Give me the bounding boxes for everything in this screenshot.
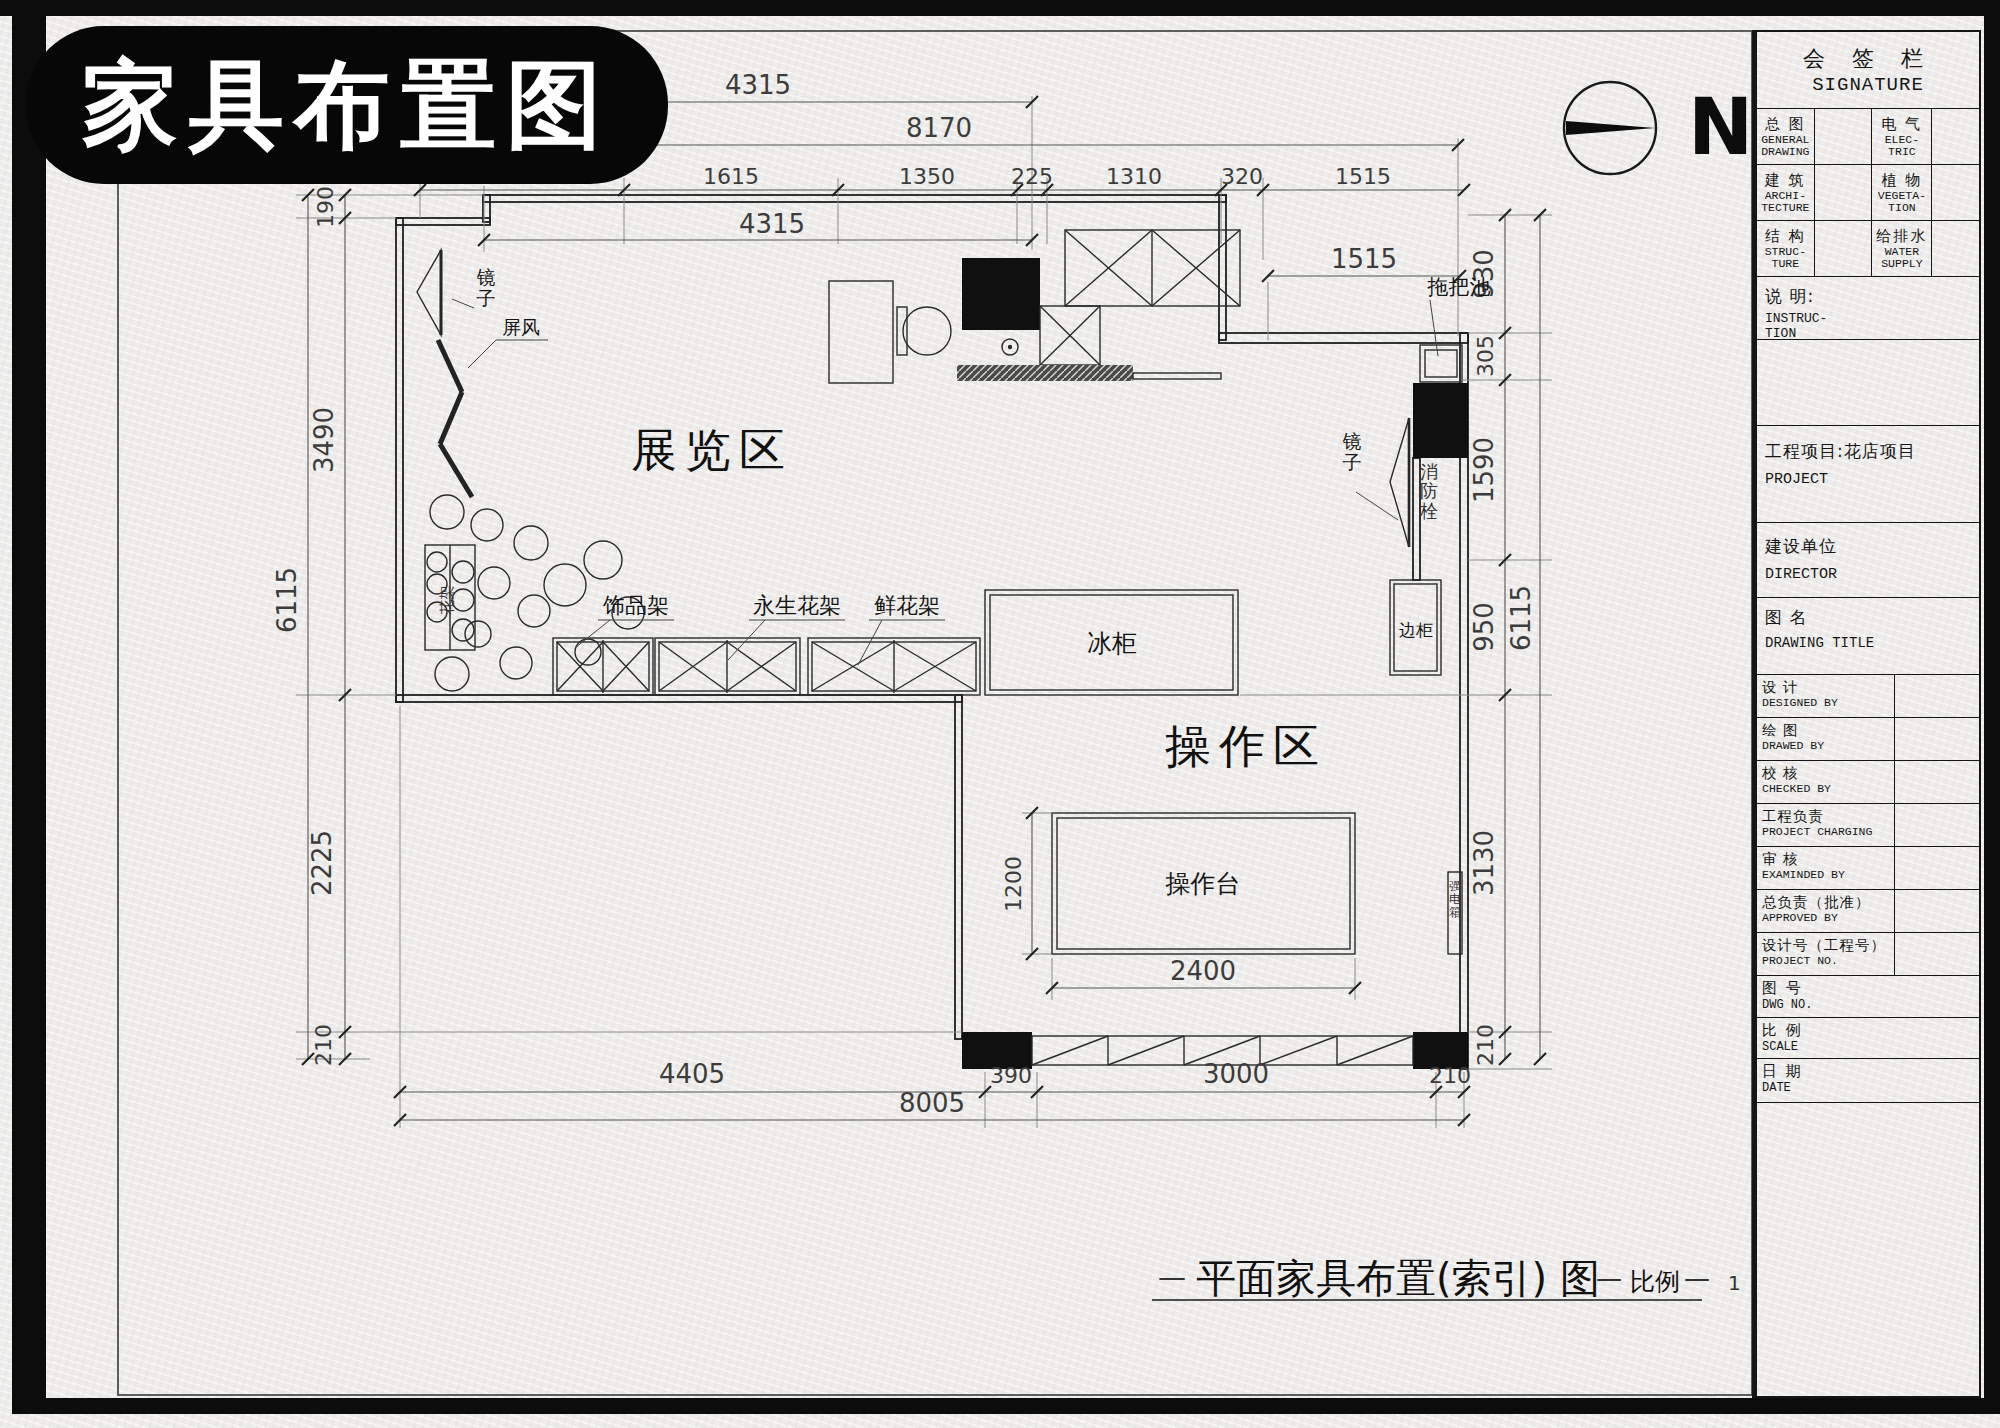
dim-chain-0: 1615 (703, 164, 759, 189)
dim-chain-5: 1515 (1335, 164, 1391, 189)
sig-cell-blank (1815, 165, 1873, 221)
dim-table-depth: 1200 (1001, 856, 1026, 912)
dim-chain-2: 225 (1011, 164, 1053, 189)
counter-edge (1133, 373, 1221, 379)
appliance-black (962, 258, 1040, 330)
chair-back (897, 307, 907, 355)
drawing-sheet: 4315 8170 1615 1350 225 1310 320 1515 43… (0, 0, 2000, 1428)
dim-right-2: 1590 (1469, 437, 1499, 503)
footer-drawing-title: 平面家具布置(索引) 图 (1196, 1255, 1600, 1301)
sig-cell-blank (1932, 165, 1979, 221)
north-compass: N (1564, 82, 1753, 174)
sig-cell-water: 给排水WATER SUPPLY (1872, 221, 1932, 277)
zone-operation: 操作区 (1165, 719, 1327, 773)
dim-top2: 8170 (906, 113, 972, 143)
dim-chain-4: 320 (1221, 164, 1263, 189)
signature-title-en: SIGNATURE (1812, 74, 1924, 96)
row-value-blank (1894, 675, 1979, 717)
label-rack-preserved: 永生花架 (753, 593, 841, 618)
row-value-blank (1894, 847, 1979, 889)
sig-cell-blank (1932, 221, 1979, 277)
row-value-blank (1894, 761, 1979, 803)
dim-bottom-0: 4405 (659, 1059, 725, 1089)
display-racks (553, 638, 980, 695)
title-block: 会 签 栏 SIGNATURE 总 图GENERAL DRAWING 电 气EL… (1752, 30, 1981, 1398)
label-flower-stand: 花架 (438, 585, 456, 615)
dim-bottom-2: 3000 (1203, 1059, 1269, 1089)
signature-grid: 总 图GENERAL DRAWING 电 气ELEC- TRIC 建 筑ARCH… (1757, 109, 1979, 277)
row-value-blank (1894, 718, 1979, 760)
label-rack-fresh: 鲜花架 (874, 593, 940, 618)
sig-cell-architecture: 建 筑ARCHI- TECTURE (1757, 165, 1815, 221)
sig-cell-blank (1932, 109, 1979, 165)
dim-right-lower: 3130 (1469, 830, 1499, 896)
dim-table-width: 2400 (1170, 956, 1236, 986)
dim-bottom-1: 390 (990, 1063, 1032, 1088)
row-checked-by: 校 核CHECKED BY (1757, 761, 1979, 804)
north-letter: N (1688, 82, 1753, 172)
row-value-blank (1894, 890, 1979, 932)
dim-right-1: 305 (1473, 335, 1498, 377)
label-mirror-left: 镜子 (477, 266, 496, 309)
dim-bottom-total: 8005 (899, 1088, 965, 1118)
footer-dash-1: — (1158, 1261, 1186, 1294)
dim-left-total: 6115 (272, 567, 302, 633)
label-mirror-right: 镜子 (1343, 430, 1362, 473)
dim-left-3: 210 (311, 1024, 336, 1066)
dim-right-3: 950 (1469, 602, 1499, 652)
row-project-no: 设计号（工程号）PROJECT NO. (1757, 933, 1979, 976)
row-drawed-by: 绘 图DRAWED BY (1757, 718, 1979, 761)
dim-top4: 4315 (739, 209, 805, 239)
row-project-charging: 工程负责PROJECT CHARGING (1757, 804, 1979, 847)
folding-screen (438, 340, 472, 497)
label-screen: 屏风 (502, 316, 540, 338)
project-section: 工程项目:花店项目 PROJECT (1757, 426, 1979, 523)
row-date: 日 期DATE (1757, 1059, 1979, 1103)
footer-scale-value: 1 (1728, 1271, 1741, 1295)
label-freezer: 冰柜 (1087, 629, 1137, 658)
row-designed-by: 设 计DESIGNED BY (1757, 675, 1979, 718)
sig-cell-vegetation: 植 物VEGETA- TION (1872, 165, 1932, 221)
dim-wing: 1515 (1331, 244, 1397, 274)
sig-cell-structure: 结 构STRUC- TURE (1757, 221, 1815, 277)
row-value-blank (1894, 933, 1979, 975)
row-value-blank (1894, 804, 1979, 846)
dim-left-0: 190 (313, 186, 338, 228)
dim-chain-3: 1310 (1106, 164, 1162, 189)
signature-header: 会 签 栏 SIGNATURE (1757, 32, 1979, 109)
desk (829, 281, 893, 383)
dim-chain-1: 1350 (899, 164, 955, 189)
sig-cell-electric: 电 气ELEC- TRIC (1872, 109, 1932, 165)
sheet-title-badge: 家具布置图 (26, 26, 668, 184)
label-fire-hydrant: 消防栓 (1420, 461, 1438, 521)
title-block-empty (1757, 1103, 1979, 1396)
walls (396, 195, 1468, 1069)
compass-needle-icon (1566, 121, 1655, 135)
drawing-title-section: 图 名 DRAWING TITLE (1757, 598, 1979, 675)
row-examined-by: 审 核EXAMINDED BY (1757, 847, 1979, 890)
row-scale: 比 例SCALE (1757, 1018, 1979, 1059)
floor-plan-canvas: 4315 8170 1615 1350 225 1310 320 1515 43… (0, 0, 2000, 1428)
blank-section (1757, 340, 1979, 426)
row-dwg-no: 图 号DWG NO. (1757, 976, 1979, 1018)
sheet-title: 家具布置图 (82, 57, 612, 153)
dim-top1: 4315 (725, 70, 791, 100)
plan-labels: 展览区 操作区 冰柜 操作台 饰品架 永生花架 鲜花架 屏风 拖把池 边柜 镜子… (438, 266, 1491, 919)
zone-exhibition: 展览区 (631, 423, 793, 477)
footer-dash-2: — (1596, 1263, 1622, 1293)
label-power-box: 强电箱 (1449, 879, 1461, 919)
label-mop-sink: 拖把池 (1427, 275, 1491, 299)
dim-right-bottom: 210 (1473, 1024, 1498, 1066)
kitchen-area (829, 230, 1240, 383)
fire-hydrant-box (1413, 383, 1468, 458)
dim-right-total: 6115 (1506, 585, 1536, 651)
sig-cell-blank (1815, 109, 1873, 165)
label-side-cabinet: 边柜 (1399, 620, 1433, 640)
signature-title-cn: 会 签 栏 (1803, 44, 1933, 74)
dim-left-1: 3490 (309, 407, 339, 473)
footer-scale-label: 比例 (1630, 1267, 1680, 1296)
inner-frame (118, 31, 1752, 1395)
footer-dash-3: — (1684, 1263, 1710, 1293)
row-approved-by: 总负责（批准）APPROVED BY (1757, 890, 1979, 933)
dim-bottom-3: 210 (1429, 1063, 1471, 1088)
director-section: 建设单位 DIRECTOR (1757, 523, 1979, 598)
instruction-section: 说 明: INSTRUC- TION (1757, 277, 1979, 340)
sig-cell-general: 总 图GENERAL DRAWING (1757, 109, 1815, 165)
label-worktable: 操作台 (1166, 869, 1241, 898)
dim-left-2: 2225 (307, 830, 337, 896)
footer-title: — 平面家具布置(索引) 图 — 比例 — 1 (1152, 1255, 1741, 1301)
label-rack-accessory: 饰品架 (602, 593, 669, 618)
mop-sink (1420, 345, 1462, 382)
sig-cell-blank (1815, 221, 1873, 277)
chair (903, 307, 951, 355)
